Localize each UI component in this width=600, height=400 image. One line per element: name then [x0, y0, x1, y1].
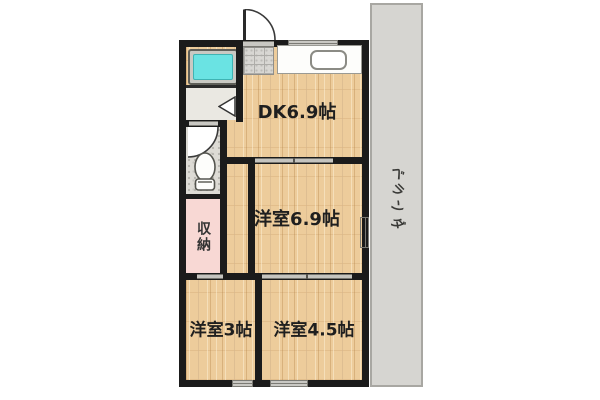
veranda-window	[360, 217, 369, 248]
western3-label: 洋室3帖	[190, 323, 253, 340]
kitchen-counter	[277, 45, 362, 74]
veranda-area: ベランダ	[370, 3, 423, 387]
sliding-door-mullion	[293, 158, 295, 163]
western45-window	[270, 380, 308, 387]
western45-label: 洋室4.5帖	[273, 323, 354, 340]
western3-western45-wall	[255, 280, 262, 387]
bathtub-icon	[188, 49, 238, 85]
sliding-door-mullion	[306, 274, 308, 279]
toilet-icon	[193, 152, 217, 192]
storage-label: 収納	[193, 221, 213, 253]
door-notch-icon	[218, 96, 236, 117]
veranda-label: ベランダ	[390, 163, 403, 235]
bathtub-water	[193, 54, 233, 80]
western69-label: 洋室6.9帖	[254, 211, 340, 229]
floorplan-canvas: ベランダ 収納	[0, 0, 600, 400]
toilet-door-opening	[189, 121, 218, 126]
genkan-tile-area	[243, 47, 274, 75]
washroom-right-wall	[236, 47, 243, 122]
storage-room: 収納	[186, 199, 220, 274]
western3-window	[232, 380, 253, 387]
door-swing-icon	[243, 9, 276, 41]
kitchen-sink-icon	[310, 50, 347, 70]
dk-label: DK6.9帖	[258, 104, 337, 122]
toilet-storage-right-wall	[220, 120, 227, 280]
western3-door	[197, 274, 223, 279]
